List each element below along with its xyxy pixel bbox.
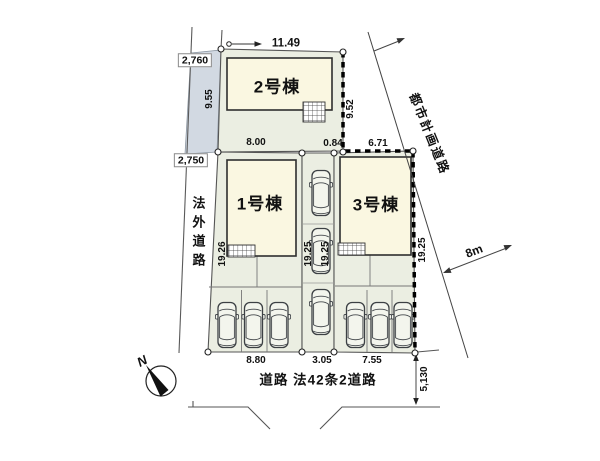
road-direction-arrowhead [397, 38, 406, 44]
top-dimension-leader [227, 41, 262, 47]
dim-lot1-left-length: 19.26 [218, 241, 228, 266]
car-icon [344, 303, 367, 348]
dim-lot2-right-length: 9.52 [346, 99, 356, 118]
compass-needle [146, 365, 169, 397]
dim-lot3-top-seg-b: 6.71 [368, 139, 387, 149]
bottom-road-label: 道路 法42条2道路 [259, 373, 376, 387]
porch-hatch [228, 245, 255, 257]
site-plan: 2号棟 1号棟 3号棟 11.49 2,760 2,750 9.55 9.52 … [0, 0, 600, 461]
dim-lot2-left-length: 9.55 [205, 89, 215, 108]
bottom-road-edge [188, 401, 440, 429]
dim-lot2-width-top: 11.49 [272, 38, 300, 50]
dim-lot3-right-length: 19.25 [418, 237, 428, 262]
dim-lot3-width-bottom: 7.55 [362, 356, 381, 366]
dim-drive-left-length: 19.25 [304, 241, 314, 266]
car-icon [309, 171, 332, 216]
car-icon [309, 290, 332, 335]
car-icon [391, 303, 414, 348]
dim-drive-right-length: 19.25 [321, 241, 331, 266]
dim-left-road-width-top: 2,760 [178, 53, 212, 67]
dim-drive-width-bottom: 3.05 [312, 356, 331, 366]
dim-lot1-width-bottom: 8.80 [246, 356, 265, 366]
dim-lot3-top-seg-a: 0.84 [323, 139, 342, 149]
car-icon [215, 303, 238, 348]
building-2-label: 2号棟 [254, 79, 300, 96]
car-icon [267, 303, 290, 348]
porch-hatch [303, 102, 325, 122]
dim-lot1-width-top: 8.00 [246, 138, 265, 148]
building-3-label: 3号棟 [353, 197, 399, 214]
dim-left-road-width-mid: 2,750 [174, 153, 208, 167]
site-plan-drawing [0, 0, 600, 461]
car-icon [242, 303, 265, 348]
dim-bottom-road-width: 5,130 [420, 366, 430, 391]
porch-hatch [338, 243, 365, 255]
car-icon [368, 303, 391, 348]
north-compass [146, 365, 176, 397]
building-1-label: 1号棟 [237, 196, 283, 213]
left-road-label: 法外道路 [192, 196, 205, 272]
